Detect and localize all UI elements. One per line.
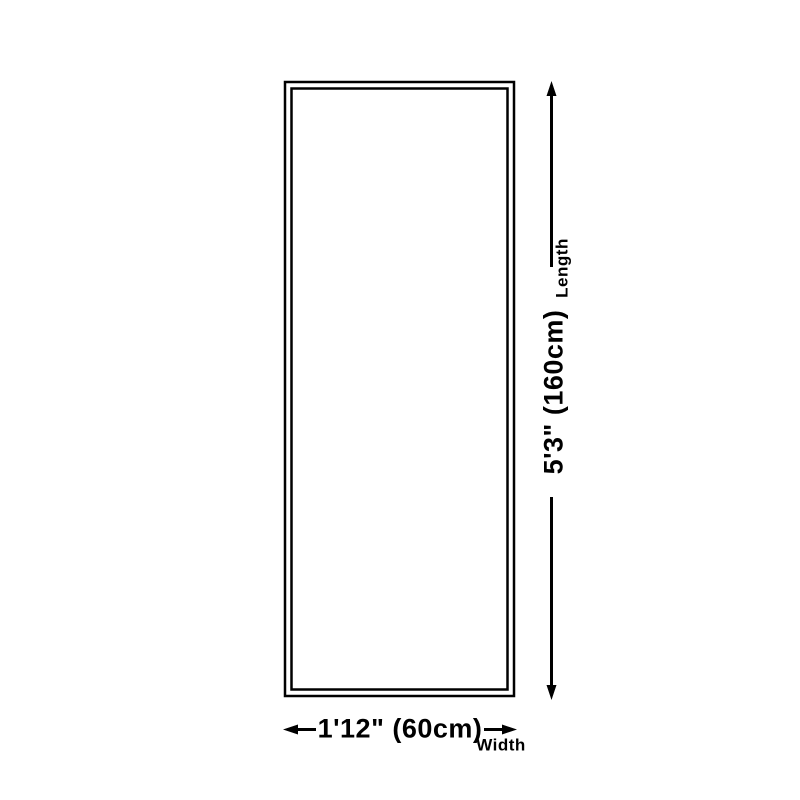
diagram-shapes [0,0,800,800]
arrow-right-head-icon [502,725,517,735]
panel-outer-outline [285,82,514,696]
width-axis-label: Width [476,737,526,754]
arrow-down-head-icon [547,685,557,700]
arrow-left-head-icon [283,725,298,735]
arrow-up-head-icon [547,81,557,96]
length-axis-label: Length [554,238,571,298]
length-value-label: 5'3" (160cm) [541,310,568,475]
dimension-diagram: Length 5'3" (160cm) 1'12" (60cm) Width [0,0,800,800]
width-value-label: 1'12" (60cm) [318,716,483,743]
